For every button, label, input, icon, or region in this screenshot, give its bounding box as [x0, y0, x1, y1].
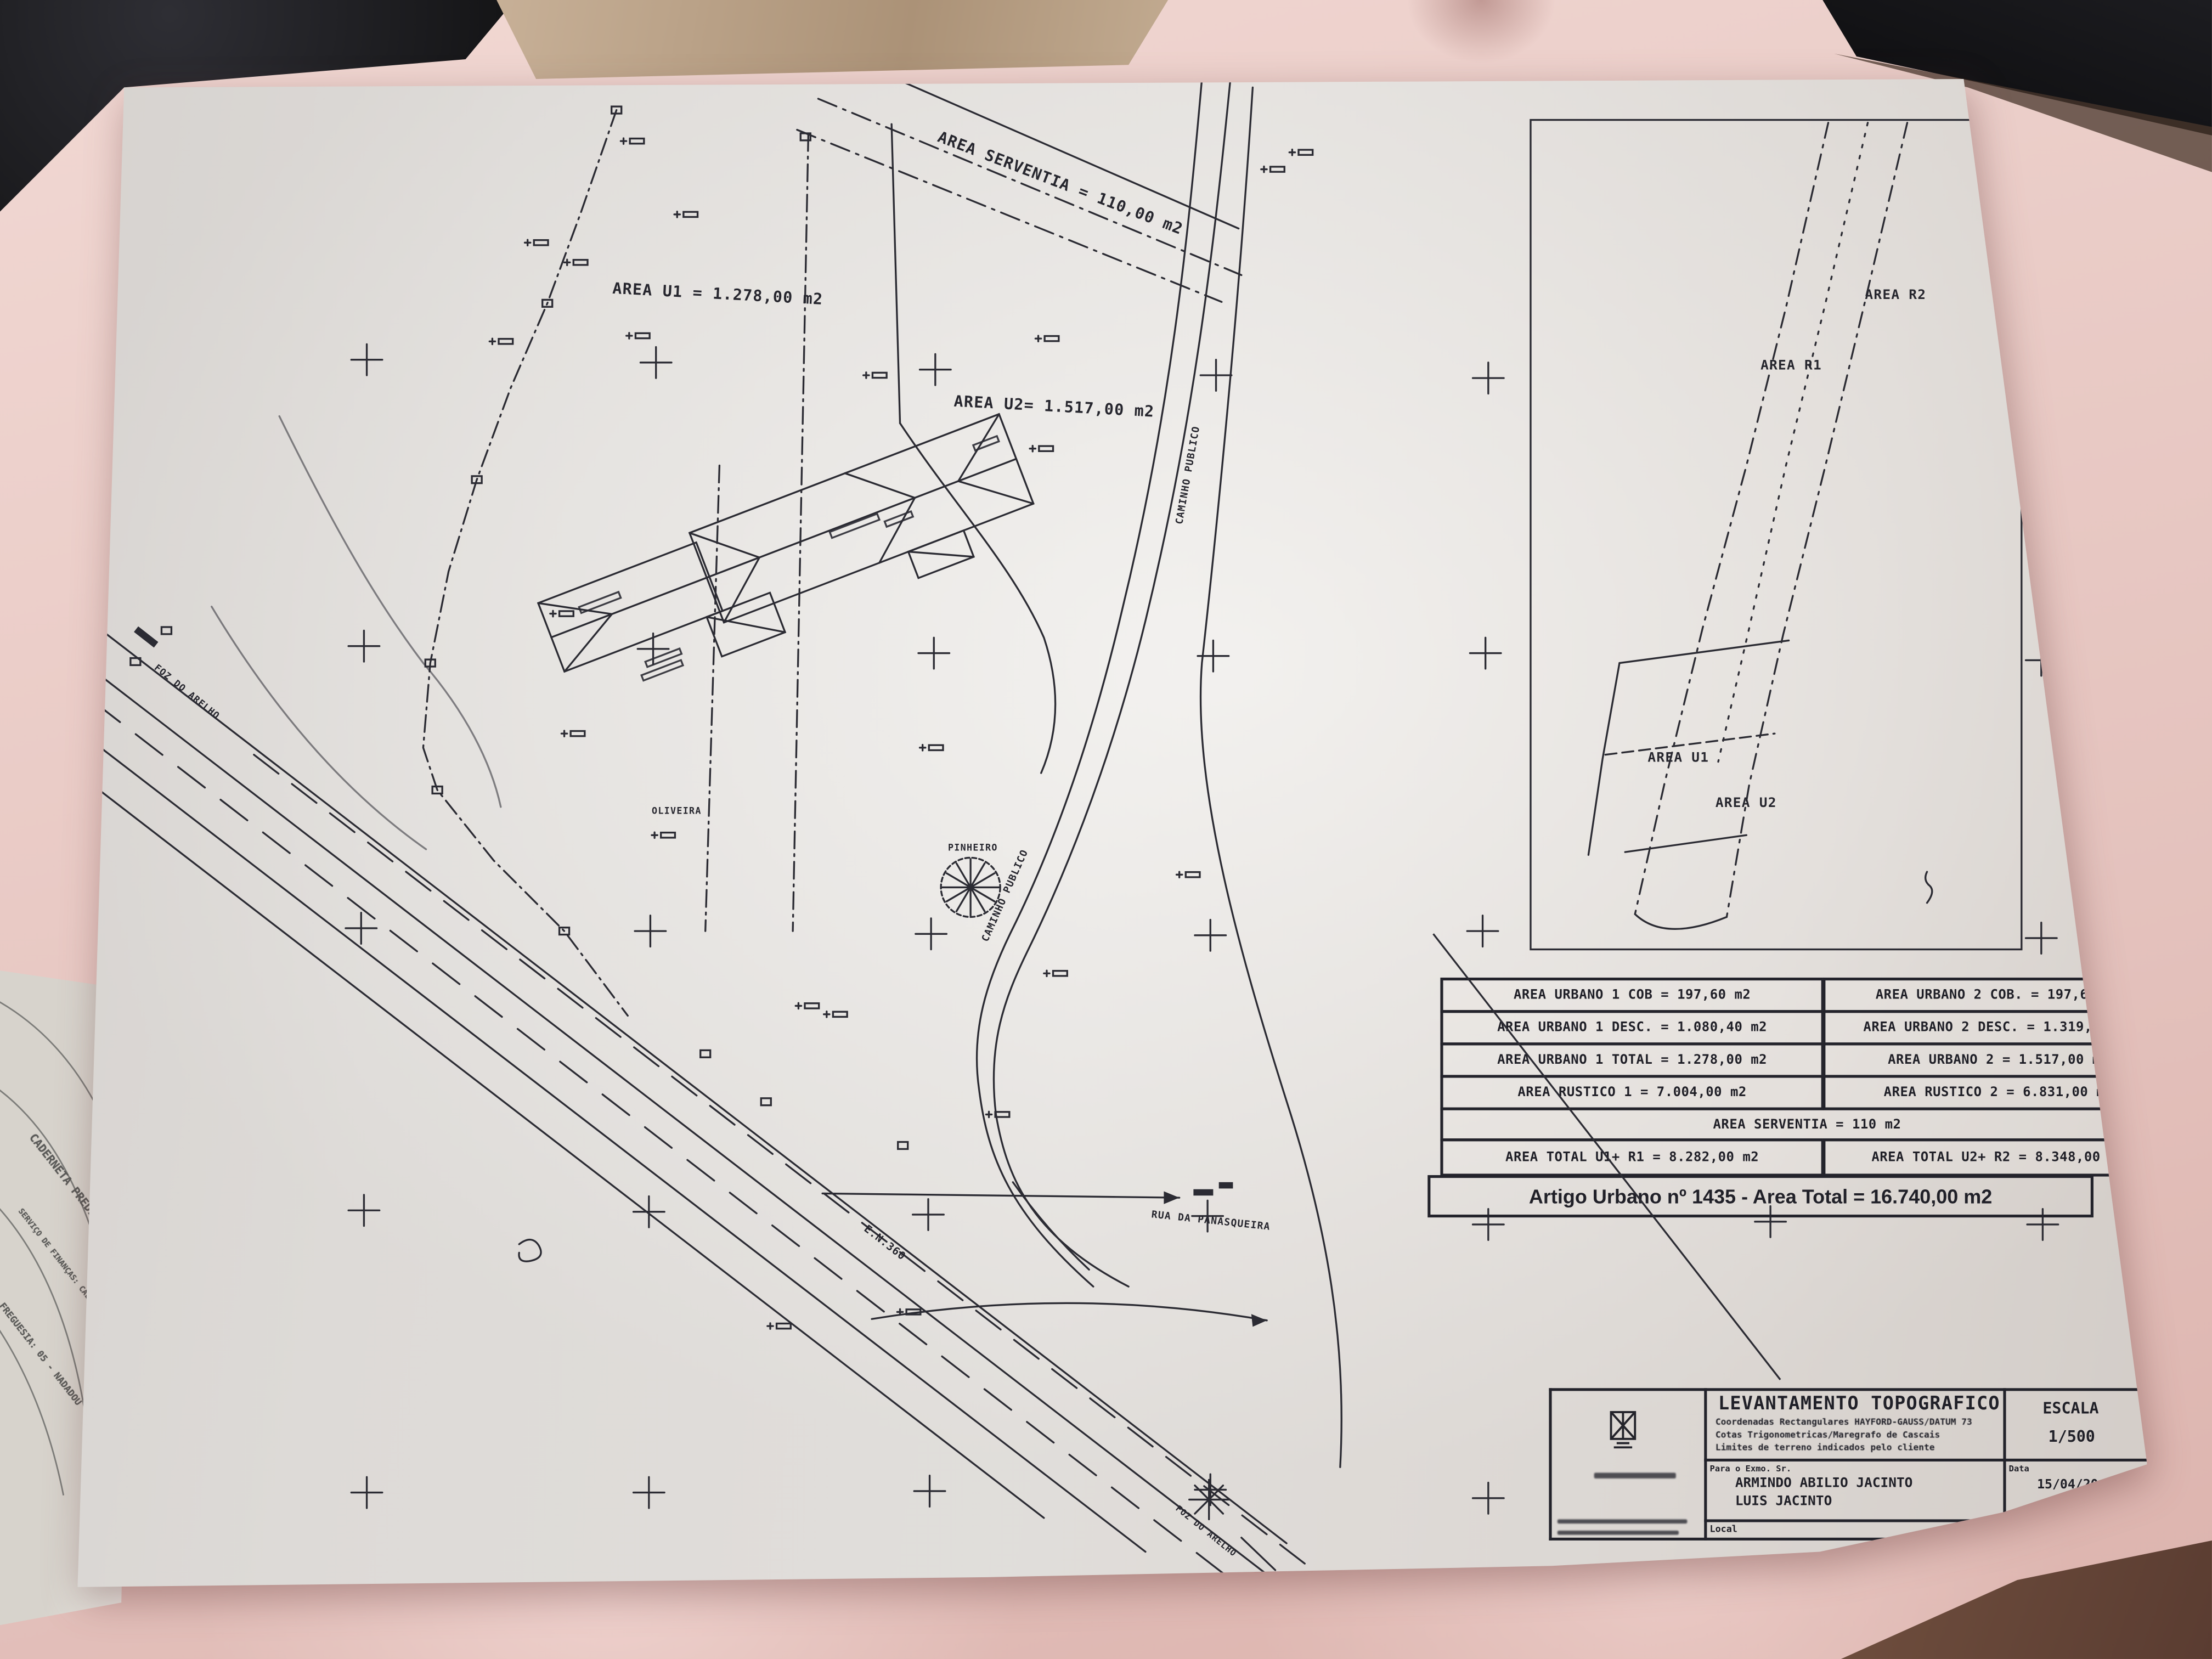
table-cell-total-u2r2: AREA TOTAL U2+ R2 = 8.348,00 m2 [1822, 1138, 2174, 1176]
municipal-crest-icon [1608, 1410, 1639, 1450]
main-road-lines [12, 615, 1327, 1598]
caminho-publico-road [977, 79, 1342, 1467]
north-asterisk-icon [1189, 1480, 1229, 1519]
titleblock-escala-value: 1/500 [2049, 1427, 2095, 1446]
titleblock-data-value: 15/04/20 [2037, 1479, 2098, 1493]
table-cell-urbano2-cob: AREA URBANO 2 COB. = 197,60 m2 [1822, 978, 2174, 1013]
illegible-firm-address-2 [1558, 1531, 1679, 1535]
label-area-u2: AREA U2= 1.517,00 m2 [953, 392, 1155, 421]
serventia-strip-lines [797, 82, 1242, 302]
keyplan-label-r2: AREA R2 [1865, 286, 1926, 302]
table-cell-serventia: AREA SERVENTIA = 110 m2 [1440, 1108, 2174, 1142]
u1-u2-division-line [793, 134, 808, 931]
building-illegible-labels [575, 436, 1034, 693]
parcel-boundaries [423, 110, 808, 1016]
survey-paper-sheet: AREA SERVENTIA = 110,00 m2 AREA U1 = 1.2… [0, 0, 2212, 1659]
survey-paper-wrapper: AREA SERVENTIA = 110,00 m2 AREA U1 = 1.2… [0, 0, 2212, 1659]
keyplan-label-u1: AREA U1 [1647, 749, 1709, 765]
scene-background-fabric: CADERNETA PREDIAL URB SERVIÇO DE FINANÇA… [0, 0, 2212, 1659]
label-foz-do-arelho-bottom: FOZ DO ARELHO [1173, 1504, 1238, 1559]
label-rua-panasqueira: RUA DA PANASQUEIRA [1151, 1209, 1271, 1233]
label-en360: E.N.360 [862, 1222, 909, 1263]
table-cell-urbano1-cob: AREA URBANO 1 COB = 197,60 m2 [1440, 978, 1824, 1013]
keyplan-label-r1: AREA R1 [1760, 357, 1822, 373]
table-cell-urbano1-total: AREA URBANO 1 TOTAL = 1.278,00 m2 [1440, 1042, 1824, 1077]
survey-markers [131, 106, 908, 1149]
titleblock-client2: LUIS JACINTO [1735, 1494, 1832, 1509]
titleblock-line1: Coordenadas Rectangulares HAYFORD-GAUSS/… [1716, 1418, 1972, 1427]
titleblock-client1: ARMINDO ABILIO JACINTO [1735, 1476, 1913, 1491]
artigo-urbano-total: Artigo Urbano nº 1435 - Area Total = 16.… [1427, 1175, 2093, 1217]
titleblock-para-label: Para o Exmo. Sr. [1710, 1464, 1792, 1474]
titleblock-line3: Limites de terreno indicados pelo client… [1716, 1443, 1935, 1453]
keyplan-label-u2: AREA U2 [1716, 794, 1777, 810]
contour-lines [212, 416, 501, 849]
titleblock-obra-label: Obra. Nº [2009, 1525, 2050, 1535]
table-cell-total-u1r1: AREA TOTAL U1+ R1 = 8.282,00 m2 [1440, 1138, 1824, 1176]
label-pinheiro: PINHEIRO [948, 842, 998, 853]
street-arrows [822, 1182, 1267, 1327]
titleblock-data-label: Data [2009, 1464, 2029, 1474]
keyplan-box [1531, 120, 2022, 950]
table-cell-urbano1-desc: AREA URBANO 1 DESC. = 1.080,40 m2 [1440, 1010, 1824, 1045]
titleblock-escala-label: ESCALA [2042, 1400, 2098, 1418]
table-cell-rustico2: AREA RUSTICO 2 = 6.831,00 m2 [1822, 1075, 2174, 1110]
illegible-firm-address-1 [1558, 1519, 1688, 1523]
keyplan-squiggle [1926, 872, 1932, 903]
road-tick [1242, 1538, 1276, 1570]
pencil-mark [519, 1240, 541, 1262]
en360-centerline [254, 755, 1326, 1580]
pine-tree-icon [941, 857, 1000, 917]
table-cell-rustico1: AREA RUSTICO 1 = 7.004,00 m2 [1440, 1075, 1824, 1110]
titleblock-title: LEVANTAMENTO TOPOGRAFICO [1718, 1394, 1995, 1415]
titleblock-local-label: Local [1710, 1523, 1737, 1535]
grid-crosses [346, 344, 2058, 1514]
label-area-serventia: AREA SERVENTIA = 110,00 m2 [935, 128, 1186, 238]
label-foz-do-arelho-top: FOZ DO ARELHO [153, 662, 222, 721]
building-footprint [534, 414, 1045, 711]
illegible-road-label [134, 627, 158, 648]
elevation-marks [489, 138, 1312, 1329]
photo-of-survey-plan: CADERNETA PREDIAL URB SERVIÇO DE FINANÇA… [0, 0, 2212, 1659]
label-oliveira: OLIVEIRA [652, 805, 702, 816]
table-cell-urbano2-desc: AREA URBANO 2 DESC. = 1.319,40 m2 [1822, 1010, 2174, 1045]
table-cell-urbano2-total: AREA URBANO 2 = 1.517,00 m2 [1822, 1042, 2174, 1077]
illegible-firm-name [1594, 1473, 1676, 1478]
label-area-u1: AREA U1 = 1.278,00 m2 [612, 279, 824, 308]
titleblock-line2: Cotas Trigonometricas/Maregrafo de Casca… [1716, 1430, 1940, 1440]
